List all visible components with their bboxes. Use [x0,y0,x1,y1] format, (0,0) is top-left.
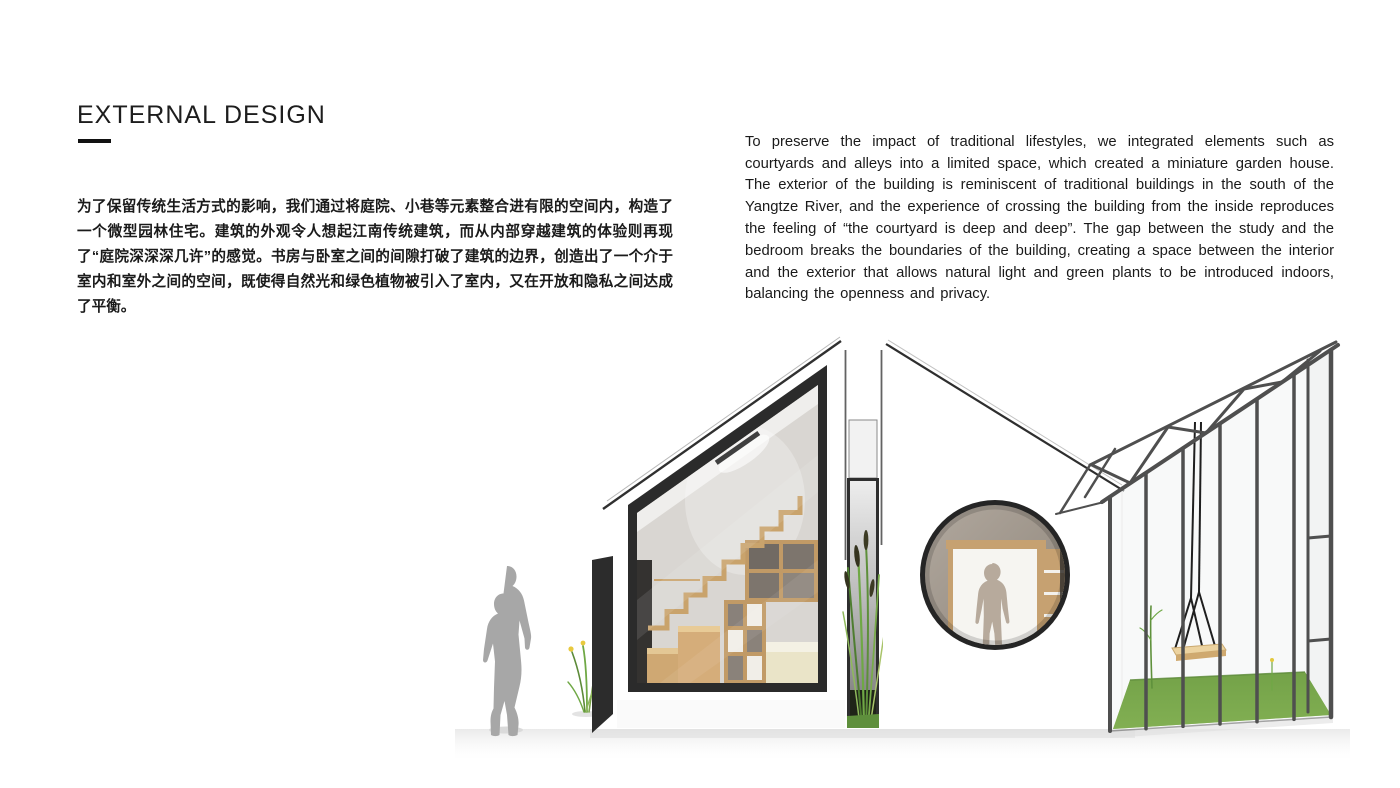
title-underline [78,139,111,143]
paragraph-english: To preserve the impact of traditional li… [745,132,1334,306]
slot-grass-patch [847,714,879,728]
courtyard-slot [843,350,886,728]
flower-blossom [568,646,573,651]
paragraph-chinese: 为了保留传统生活方式的影响，我们通过将庭院、小巷等元素整合进有限的空间内，构造了… [77,195,673,320]
page-title: EXTERNAL DESIGN [77,101,326,130]
page-root: { "page": { "title": "EXTERNAL DESIGN", … [0,0,1400,788]
bed [766,642,818,684]
bedroom-house [883,340,1124,728]
study-house [592,337,845,733]
illustration-canvas [440,330,1360,775]
person-shape [483,566,531,736]
chimney-slab [592,556,613,733]
person-silhouette [483,566,531,736]
